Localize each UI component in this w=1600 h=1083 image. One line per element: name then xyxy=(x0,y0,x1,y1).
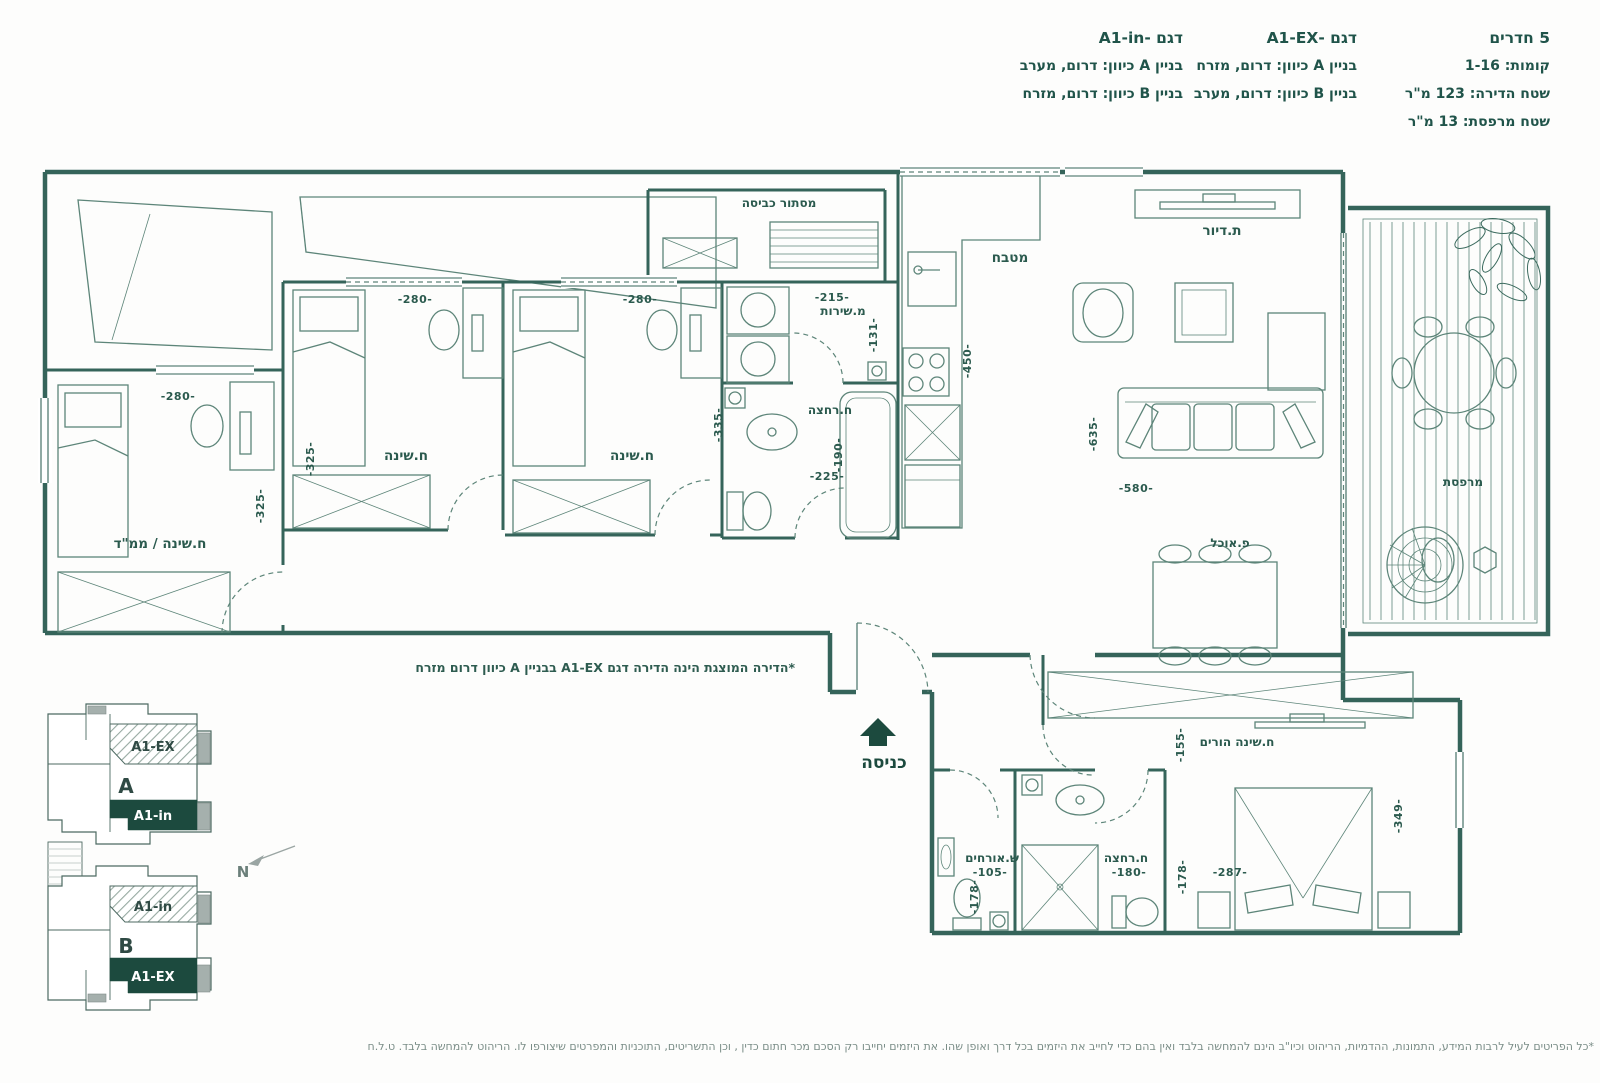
master-bedroom-furniture xyxy=(1048,672,1413,930)
dim-living-w: -580- xyxy=(1119,482,1154,495)
keyplan-a-in-label: A1-in xyxy=(134,809,172,824)
dim-mamad-w: -280- xyxy=(161,390,196,403)
balcony-plant xyxy=(1452,216,1543,304)
outer-walls xyxy=(45,172,1460,933)
dim-bath-lower-w: -180- xyxy=(1112,866,1147,879)
dim-kitchen-h: -450- xyxy=(961,344,974,379)
room-label-living: ת.דיור xyxy=(1202,223,1241,239)
room-label-service-wc: מ.שירות xyxy=(820,304,865,318)
balcony-walls xyxy=(1348,208,1548,634)
dim-living-h: -635- xyxy=(1087,417,1100,452)
door-arcs xyxy=(222,333,1148,823)
laundry-fixtures xyxy=(663,222,878,268)
room-label-guest-wc: ש.אורחים xyxy=(965,851,1019,865)
dim-mamad-h: -325- xyxy=(254,489,267,524)
keyplan-b-ex-label: A1-EX xyxy=(131,970,174,985)
room-label-master: ח.שינה הורים xyxy=(1200,735,1275,749)
entrance-label: כניסה xyxy=(861,753,907,773)
north-label: N xyxy=(237,863,250,881)
living-furniture xyxy=(1073,190,1325,665)
entrance-arrow-icon xyxy=(860,718,896,746)
balcony-furniture xyxy=(1370,216,1543,620)
entrance-marker: כניסה xyxy=(860,718,907,773)
footer-disclaimer: *כל הפריטים לעיל לרבות המידע, התמונות, ה… xyxy=(368,1040,1594,1053)
keyplan-b-in-label: A1-in xyxy=(134,900,172,915)
room-label-balcony: מרפסת xyxy=(1443,475,1483,489)
bedroom2-furniture xyxy=(293,288,503,528)
windows xyxy=(38,165,1468,828)
room-label-bath-upper: ח.רחצה xyxy=(808,403,852,417)
dim-bath-upper-h: -190- xyxy=(832,438,845,473)
void-outlines xyxy=(78,197,716,350)
keyplan-building-b-label: B xyxy=(118,934,133,958)
keyplan-a-ex-label: A1-EX xyxy=(131,740,174,755)
mamad-furniture xyxy=(58,382,274,632)
plan-annotation: *הדירה המוצגת הינה הדירה דגם A1-EX בבניי… xyxy=(415,660,795,675)
dim-bed3-h: -335- xyxy=(712,408,725,443)
room-label-laundry: מסתור כביסה xyxy=(742,196,817,210)
dim-bed3-w: -280- xyxy=(623,293,658,306)
north-arrow: N xyxy=(237,846,295,881)
dim-bath-upper-w: -225- xyxy=(810,470,845,483)
dim-master-h2: -349- xyxy=(1392,799,1405,834)
bedroom3-furniture xyxy=(513,288,721,533)
dim-bed2-h: -325- xyxy=(304,442,317,477)
room-label-mamad: ח.שינה / ממ"ד xyxy=(114,536,207,552)
room-label-bedroom3: ח.שינה xyxy=(610,448,654,464)
floorplan-page: 5 חדרים קומות: 1-16 שטח הדירה: 123 מ"ר ש… xyxy=(0,0,1600,1083)
floorplan-drawing: כניסה מסתור כביסה ח.שינה / ממ"ד ח.שינה ח… xyxy=(0,0,1600,1083)
dim-master-w: -287- xyxy=(1213,866,1248,879)
dim-bath-lower-h: -178- xyxy=(1176,860,1189,895)
dim-master-h1: -155- xyxy=(1174,728,1187,763)
room-label-bedroom2: ח.שינה xyxy=(384,448,428,464)
dim-guest-h: -178- xyxy=(968,880,981,915)
dim-service-w: -215- xyxy=(815,291,850,304)
dim-bed2-w: -280- xyxy=(398,293,433,306)
dim-guest-w: -105- xyxy=(973,866,1008,879)
keyplan-building-a-label: A xyxy=(118,774,134,798)
keyplan: A A1-EX A1-in B A1-in A1-EX N xyxy=(48,704,295,1010)
room-label-kitchen: מטבח xyxy=(992,250,1028,266)
balcony-inner-line xyxy=(1363,219,1537,623)
room-label-dining: פ.אוכל xyxy=(1210,536,1249,550)
room-label-bath-lower: ח.רחצה xyxy=(1104,851,1148,865)
dim-service-h: -131- xyxy=(867,318,880,353)
